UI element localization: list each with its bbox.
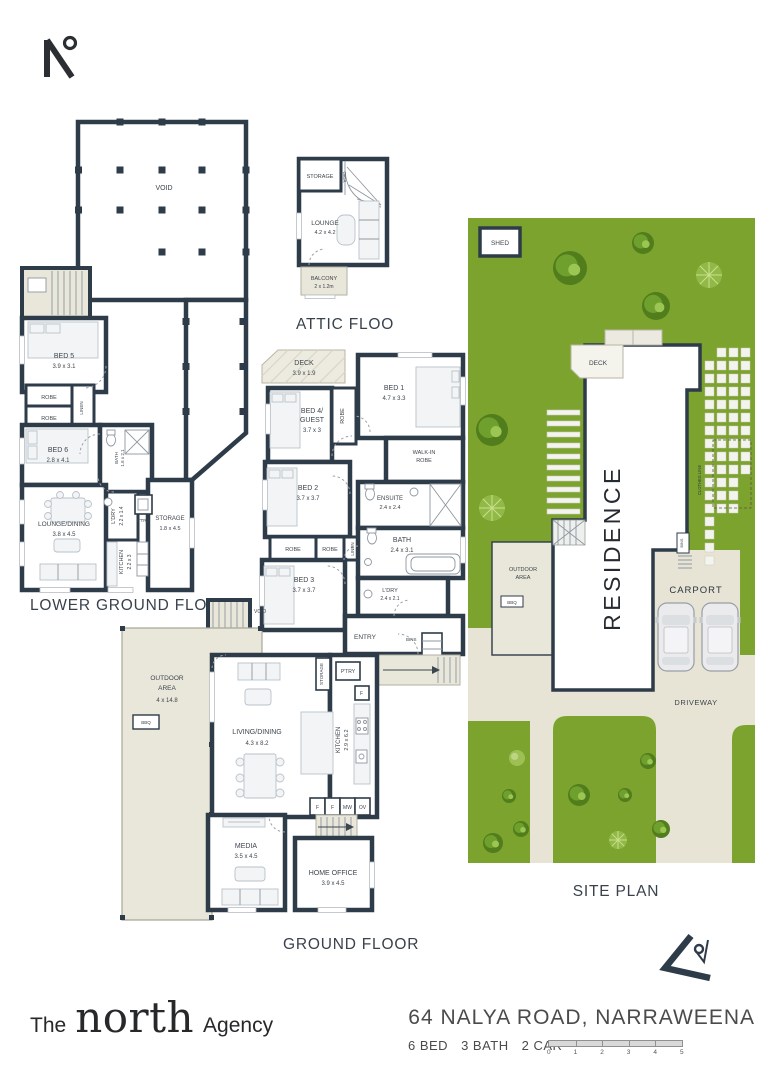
paver bbox=[717, 400, 726, 409]
car bbox=[700, 603, 741, 671]
column-square bbox=[117, 207, 124, 214]
room-dims: 2.9 x 6.2 bbox=[344, 729, 350, 750]
paver bbox=[705, 426, 714, 435]
paver bbox=[705, 400, 714, 409]
paver bbox=[717, 426, 726, 435]
room-label: ROBE bbox=[322, 547, 338, 553]
tree-highlight bbox=[520, 827, 526, 833]
tree bbox=[618, 788, 632, 802]
column-square bbox=[199, 249, 206, 256]
site-label: RESIDENCE bbox=[599, 465, 625, 631]
tree-highlight bbox=[490, 426, 501, 437]
paver bbox=[729, 348, 738, 357]
tree-fronds bbox=[696, 262, 722, 288]
tree-fronds bbox=[609, 831, 627, 849]
coffee-table bbox=[54, 539, 80, 552]
room-label: BED 2 bbox=[298, 485, 318, 492]
room-dims: 2 x 1.2m bbox=[314, 284, 333, 290]
tree-highlight bbox=[624, 793, 629, 798]
stepping-stone bbox=[547, 454, 580, 459]
site-label: DRIVEWAY bbox=[674, 698, 717, 707]
site-label: SHED bbox=[491, 240, 509, 247]
column-square bbox=[199, 207, 206, 214]
appliance-label: F bbox=[360, 691, 363, 697]
dining-setting bbox=[236, 754, 284, 798]
paver bbox=[729, 361, 738, 370]
room-label: AREA bbox=[158, 685, 176, 692]
tree-highlight bbox=[511, 753, 518, 760]
room-dims: 3.9 x 3.1 bbox=[52, 364, 76, 370]
stepping-stone bbox=[547, 509, 580, 514]
spec-bath: 3 BATH bbox=[461, 1038, 509, 1053]
column-square bbox=[183, 318, 190, 325]
kitchen-bench bbox=[354, 704, 370, 784]
logo-the: The bbox=[30, 1014, 66, 1038]
paver bbox=[729, 491, 738, 500]
room-dims: 2.4 x 3.1 bbox=[390, 548, 414, 554]
tree-highlight bbox=[642, 240, 650, 248]
room-label: LOUNGE bbox=[311, 220, 339, 227]
room-dims: 3.9 x 4.5 bbox=[321, 881, 345, 887]
site-label: CARPORT bbox=[669, 585, 722, 596]
paver bbox=[729, 400, 738, 409]
paver bbox=[741, 413, 750, 422]
north-logo-glyph bbox=[38, 30, 83, 85]
room-label: ROBE bbox=[340, 408, 346, 424]
paver bbox=[705, 517, 714, 526]
room-label: HOME OFFICE bbox=[309, 870, 358, 877]
logo-north: north bbox=[75, 993, 194, 1042]
room-dims: 2.8 x 4.1 bbox=[46, 458, 70, 464]
room-label: LIVING/DINING bbox=[232, 729, 281, 736]
sofa bbox=[359, 201, 379, 259]
floor-title: SITE PLAN bbox=[573, 883, 659, 900]
tree-highlight bbox=[568, 264, 580, 276]
paver bbox=[729, 465, 738, 474]
room-label: VOID bbox=[155, 185, 172, 192]
room-dims: 4 x 14.8 bbox=[156, 698, 178, 704]
site-label: BINS bbox=[680, 538, 684, 547]
paver bbox=[717, 452, 726, 461]
paver bbox=[717, 387, 726, 396]
paver bbox=[729, 387, 738, 396]
appliance-label: OV bbox=[359, 805, 367, 811]
car bbox=[656, 603, 697, 671]
room-label: BED 1 bbox=[384, 385, 404, 392]
scale-tick: 5 bbox=[680, 1049, 684, 1056]
scale-tick: 4 bbox=[653, 1049, 657, 1056]
stepping-stone bbox=[547, 498, 580, 503]
north-compass-icon bbox=[655, 918, 750, 993]
floorplan-page: VOID BED 5 3.9 x 3.1 ROBE ROBE LINEN BED… bbox=[0, 0, 763, 1080]
site-label: OUTDOOR bbox=[509, 567, 537, 573]
room-label: BED 6 bbox=[48, 447, 68, 454]
attic-floor-plan: STORAGE VOID LOUNGE 4.2 x 4.2 BALCONY 2 … bbox=[295, 155, 395, 345]
room-label: P'TRY bbox=[341, 669, 356, 675]
appliance-label: F bbox=[331, 805, 334, 811]
paver bbox=[705, 556, 714, 565]
paver bbox=[729, 374, 738, 383]
room-label: BED 3 bbox=[294, 577, 314, 584]
paver bbox=[741, 361, 750, 370]
room-label: DECK bbox=[294, 360, 314, 367]
room-dims: 3.7 x 3.7 bbox=[296, 496, 320, 502]
room-label: ENTRY bbox=[354, 634, 377, 641]
tree-highlight bbox=[508, 794, 513, 799]
room-dims: 3.5 x 4.5 bbox=[234, 854, 258, 860]
rug bbox=[337, 215, 355, 245]
tree bbox=[483, 833, 503, 853]
room-label: ENSUITE bbox=[377, 496, 403, 502]
scale-tick: 2 bbox=[600, 1049, 604, 1056]
room-label: L'DRY bbox=[111, 508, 117, 524]
tree bbox=[509, 750, 525, 766]
paver bbox=[729, 413, 738, 422]
room-label: LOUNGE/DINING bbox=[38, 521, 90, 528]
paver bbox=[705, 530, 714, 539]
tree bbox=[652, 820, 670, 838]
room-dims: 4.2 x 4.2 bbox=[314, 230, 335, 236]
room-dims: 4.3 x 8.2 bbox=[245, 741, 269, 747]
column-square bbox=[243, 249, 250, 256]
stepping-stone bbox=[547, 410, 580, 415]
tree-highlight bbox=[578, 792, 586, 800]
stairs bbox=[22, 268, 90, 318]
room-dims: 3.7 x 3 bbox=[303, 428, 322, 434]
tree-highlight bbox=[660, 827, 666, 833]
scale-bar: 0 1 2 3 4 5 bbox=[548, 1040, 683, 1047]
tree bbox=[632, 232, 654, 254]
column-square bbox=[243, 167, 250, 174]
site-plan: SHED DECK RESIDENCE OUTDOOR AREA BBQ BIN… bbox=[468, 218, 755, 918]
paver bbox=[705, 413, 714, 422]
rug bbox=[235, 867, 265, 881]
room-label: STORAGE bbox=[307, 174, 334, 180]
paver bbox=[705, 543, 714, 552]
column-square bbox=[240, 318, 247, 325]
tree bbox=[479, 495, 505, 521]
paver bbox=[741, 400, 750, 409]
room-label: OUTDOOR bbox=[150, 675, 184, 682]
column-square bbox=[159, 207, 166, 214]
room-dims: 3.7 x 3.7 bbox=[292, 588, 316, 594]
tree-highlight bbox=[655, 303, 665, 313]
paver bbox=[705, 361, 714, 370]
paver bbox=[717, 491, 726, 500]
stepping-stone bbox=[547, 421, 580, 426]
floor-title: ATTIC FLOOR bbox=[296, 316, 395, 333]
tree bbox=[553, 251, 587, 285]
column-square bbox=[159, 167, 166, 174]
paver bbox=[741, 348, 750, 357]
room-dims: 2.4 x 2.1 bbox=[380, 596, 399, 602]
room-label: L'DRY bbox=[382, 588, 398, 594]
ground-floor-plan: DECK 3.9 x 1.9 BED 1 4.7 x 3.3 BED 4/ GU… bbox=[118, 332, 468, 962]
paver bbox=[729, 504, 738, 513]
tree-highlight bbox=[647, 759, 653, 765]
room-label: ROBE bbox=[285, 547, 301, 553]
paver bbox=[717, 504, 726, 513]
paver bbox=[741, 426, 750, 435]
tree-highlight bbox=[492, 841, 499, 848]
tree bbox=[476, 414, 508, 446]
paver bbox=[729, 478, 738, 487]
scale-tick: 3 bbox=[627, 1049, 631, 1056]
paver bbox=[741, 465, 750, 474]
paver bbox=[705, 387, 714, 396]
site-label: BBQ bbox=[507, 600, 517, 605]
site-label: DECK bbox=[589, 360, 608, 367]
scale-tick: 0 bbox=[547, 1049, 551, 1056]
paver bbox=[717, 465, 726, 474]
coffee-table bbox=[245, 689, 271, 705]
column-square bbox=[75, 207, 82, 214]
paver bbox=[741, 387, 750, 396]
stepping-stone bbox=[547, 465, 580, 470]
paver bbox=[741, 452, 750, 461]
room-dims: 3.9 x 1.9 bbox=[292, 371, 316, 377]
room-label: BALCONY bbox=[311, 276, 338, 282]
paver bbox=[717, 413, 726, 422]
stepping-stone bbox=[547, 487, 580, 492]
room-label: VOID bbox=[254, 609, 267, 615]
paver bbox=[717, 361, 726, 370]
stepping-stone bbox=[547, 476, 580, 481]
room-label: BBQ bbox=[141, 720, 151, 725]
paver bbox=[729, 452, 738, 461]
tree bbox=[513, 821, 529, 837]
tree bbox=[609, 831, 627, 849]
room-label: VOID bbox=[342, 171, 347, 183]
room-label: MEDIA bbox=[235, 843, 258, 850]
kitchen-island bbox=[301, 712, 333, 774]
room-label: ROBE bbox=[416, 458, 432, 464]
room-label: STORAGE bbox=[319, 663, 324, 685]
paver bbox=[717, 348, 726, 357]
room-laundry bbox=[358, 578, 448, 616]
room-label: BED 5 bbox=[54, 353, 74, 360]
column-square bbox=[159, 249, 166, 256]
column-square bbox=[199, 119, 206, 126]
tree bbox=[568, 784, 590, 806]
property-specs: 6 BED 3 BATH 2 CAR bbox=[408, 1038, 562, 1053]
stepping-stone bbox=[547, 443, 580, 448]
logo-agency: Agency bbox=[203, 1014, 273, 1038]
paver bbox=[705, 374, 714, 383]
sofa bbox=[222, 889, 278, 905]
room-label: GUEST bbox=[300, 417, 325, 424]
tree bbox=[696, 262, 722, 288]
paver bbox=[717, 478, 726, 487]
room-label: LINEN bbox=[350, 542, 355, 555]
room-label: KITCHEN bbox=[336, 727, 342, 753]
room-label: WALK-IN bbox=[413, 450, 436, 456]
room-label: ROBE bbox=[41, 395, 57, 401]
tree bbox=[502, 789, 516, 803]
paver bbox=[729, 426, 738, 435]
agency-logo: The north Agency bbox=[30, 993, 273, 1042]
column-square bbox=[243, 207, 250, 214]
room-dims: 2.4 x 2.4 bbox=[379, 505, 400, 511]
tree bbox=[642, 292, 670, 320]
floor-title: GROUND FLOOR bbox=[283, 936, 419, 953]
room-label: LINEN bbox=[79, 401, 84, 414]
sofa bbox=[238, 663, 280, 680]
column-square bbox=[117, 167, 124, 174]
room-dims: 3.8 x 4.5 bbox=[52, 532, 76, 538]
site-label: AREA bbox=[516, 575, 531, 581]
column-square bbox=[159, 119, 166, 126]
site-label: CLOTHES LINE bbox=[697, 465, 702, 495]
room-label: ROBE bbox=[41, 416, 57, 422]
sofa bbox=[40, 564, 96, 580]
property-address: 64 NALYA ROAD, NARRAWEENA bbox=[390, 1006, 755, 1030]
spec-bed: 6 BED bbox=[408, 1038, 448, 1053]
appliance-label: F bbox=[316, 805, 319, 811]
appliance-label: MW bbox=[343, 805, 352, 811]
tree bbox=[640, 753, 656, 769]
room-label: BINS bbox=[406, 637, 417, 642]
room-label: BATH bbox=[393, 537, 411, 544]
room-label: BED 4/ bbox=[301, 408, 323, 415]
column-square bbox=[199, 167, 206, 174]
scale-tick: 1 bbox=[574, 1049, 578, 1056]
stepping-stone bbox=[547, 432, 580, 437]
room-dims: 4.7 x 3.3 bbox=[382, 396, 406, 402]
column-square bbox=[117, 119, 124, 126]
column-square bbox=[75, 167, 82, 174]
paver bbox=[741, 374, 750, 383]
paver bbox=[717, 374, 726, 383]
